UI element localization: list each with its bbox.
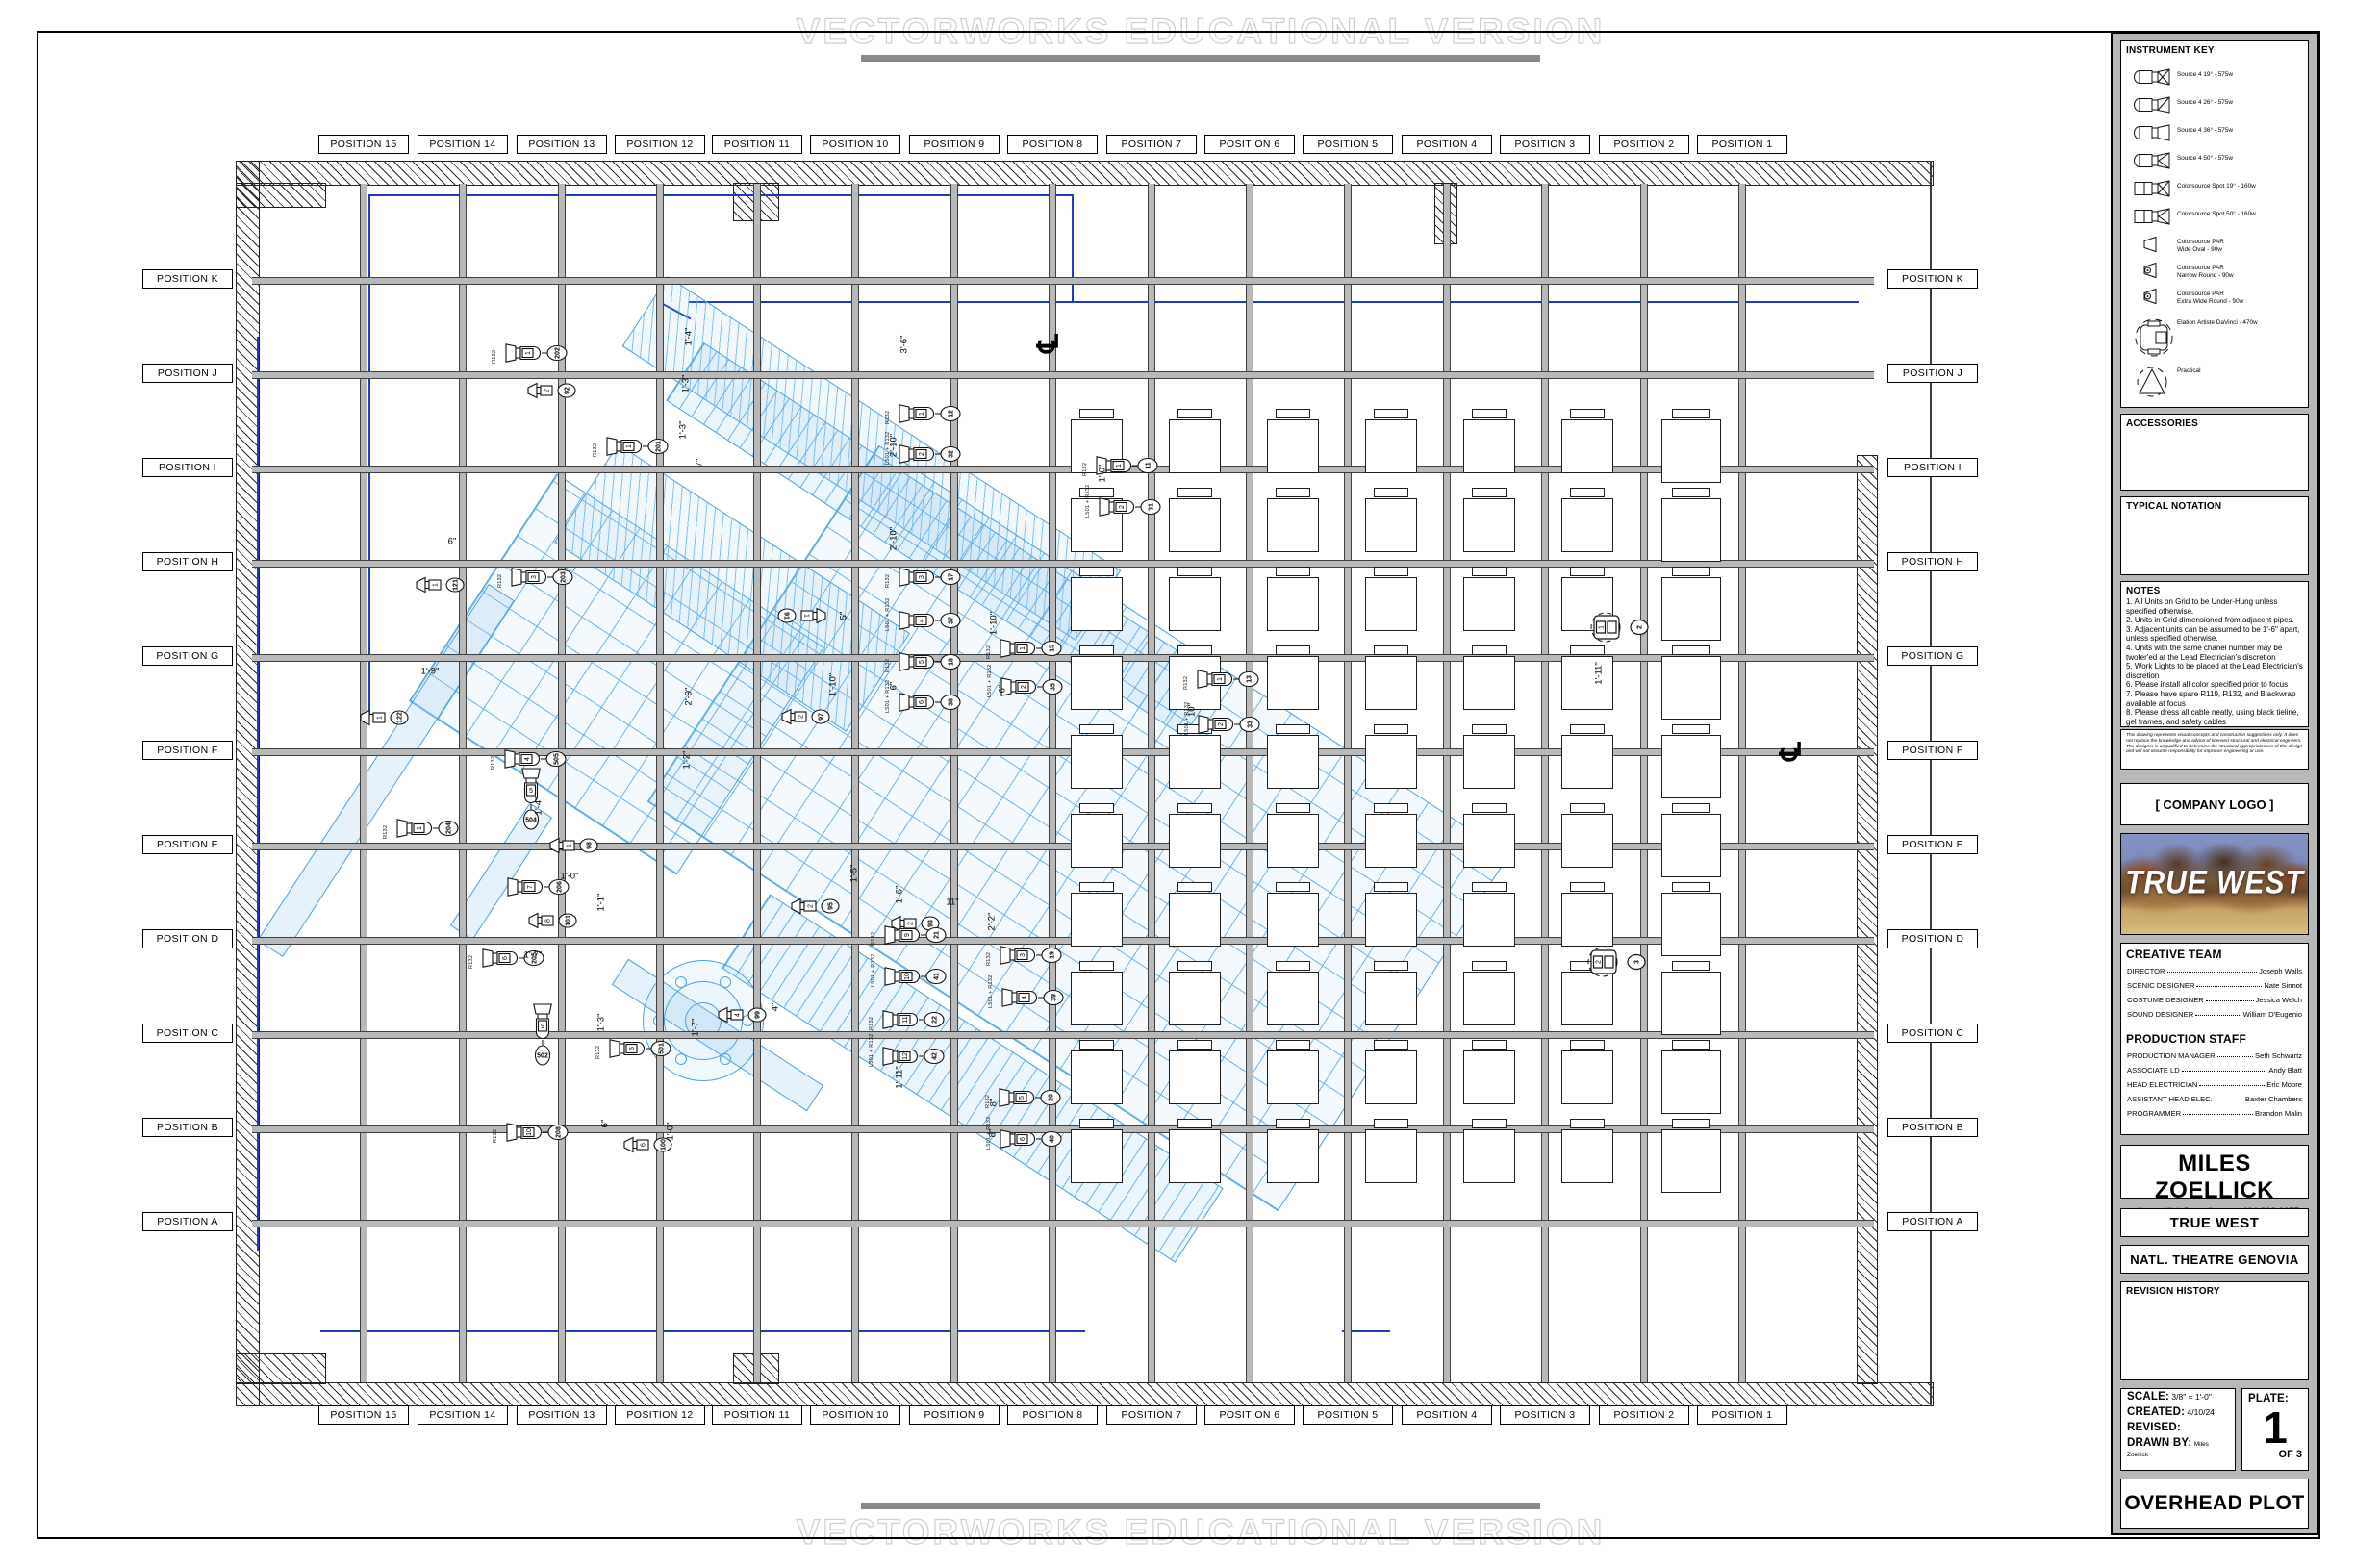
svg-text:4: 4: [734, 1013, 741, 1017]
colorsource-spot-50-icon: [2133, 208, 2173, 230]
credit-role: DIRECTOR: [2127, 967, 2165, 975]
grid-pipe-horizontal: [252, 937, 1874, 945]
production-staff-rows: PRODUCTION MANAGER Seth SchwartzASSOCIAT…: [2121, 1046, 2308, 1118]
scenic-outline-line: [689, 301, 1859, 303]
scenic-turntable-bolt: [720, 1053, 731, 1065]
seat-module-box: [1071, 1129, 1123, 1183]
seat-module-box: [1561, 814, 1613, 868]
grid-pipe-vertical: [753, 184, 761, 1382]
credit-name: Brandon Malin: [2255, 1109, 2302, 1118]
seat-module-box: [1071, 814, 1123, 868]
position-label-right: POSITION D: [1887, 929, 1978, 948]
instrument-key-item-label: Colorsource PAR Extra Wide Round - 90w: [2177, 291, 2243, 305]
seat-module-box: [1071, 893, 1123, 947]
seat-module-box: [1267, 498, 1319, 552]
position-label-top: POSITION 1: [1697, 135, 1787, 154]
grid-pipe-horizontal: [252, 560, 1874, 568]
position-label-right: POSITION A: [1887, 1212, 1978, 1231]
riser-module-clamp: [1672, 882, 1710, 892]
seat-module-clamp: [1276, 803, 1310, 813]
fixture-accessory-label: R132: [383, 818, 389, 839]
svg-text:202: 202: [554, 347, 561, 359]
grid-pipe-vertical: [1640, 184, 1648, 1382]
position-label-left: POSITION C: [142, 1024, 233, 1043]
grid-pipe-horizontal: [252, 466, 1874, 473]
svg-text:11: 11: [902, 1016, 909, 1023]
fixture-accessory-label: R132: [986, 638, 992, 659]
seat-module-clamp: [1472, 488, 1507, 497]
position-label-bottom: POSITION 11: [712, 1405, 802, 1425]
credit-role: PROGRAMMER: [2127, 1109, 2181, 1118]
seat-module-box: [1365, 972, 1417, 1025]
colorsource-par-narrow-round-icon: [2133, 262, 2173, 284]
position-label-bottom: POSITION 9: [909, 1405, 1000, 1425]
seat-module-box: [1365, 814, 1417, 868]
designer-name: MILES ZOELLICK: [2121, 1151, 2308, 1204]
source4-26-icon: [2133, 96, 2173, 118]
svg-text:31: 31: [1148, 503, 1154, 511]
typical-notation-panel: TYPICAL NOTATION: [2120, 496, 2309, 575]
svg-text:18: 18: [948, 658, 954, 666]
seat-module-box: [1169, 577, 1221, 631]
svg-text:12: 12: [948, 410, 954, 417]
note-line: 5. Work Lights to be placed at the Lead …: [2121, 662, 2308, 680]
fixture-accessory-label: R132: [869, 1009, 874, 1030]
seat-module-clamp: [1472, 724, 1507, 734]
seat-module-clamp: [1276, 409, 1310, 418]
seat-module-clamp: [1177, 409, 1212, 418]
credit-name: Eric Moore: [2266, 1080, 2302, 1089]
wall-bottom: [236, 1382, 1934, 1406]
seat-module-clamp: [1374, 803, 1408, 813]
credit-name: Jessica Welch: [2256, 996, 2302, 1004]
fixture-accessory-label: R132: [871, 924, 876, 946]
position-label-bottom: POSITION 8: [1007, 1405, 1098, 1425]
dimension-label: 1'-4": [684, 328, 695, 346]
svg-text:17: 17: [948, 573, 954, 581]
fixture-s4-channel-33: 2 33: [1196, 715, 1265, 734]
fixture-s4-channel-202: 1 202: [503, 343, 572, 363]
svg-text:32: 32: [948, 450, 954, 458]
svg-text:504: 504: [525, 817, 537, 823]
svg-text:97: 97: [818, 713, 824, 721]
credit-row: SCENIC DESIGNER Nate Sinnot: [2121, 975, 2308, 990]
seat-module-clamp: [1079, 1119, 1114, 1128]
position-label-top: POSITION 7: [1106, 135, 1197, 154]
position-label-bottom: POSITION 1: [1697, 1405, 1787, 1425]
dimension-label: 6": [600, 1120, 611, 1128]
fixture-accessory-label: L501 + R132: [885, 610, 891, 631]
dimension-label: 3'-6": [899, 336, 910, 354]
company-logo-panel: [ COMPANY LOGO ]: [2120, 783, 2309, 825]
plot-area: POSITION 15POSITION 15POSITION 14POSITIO…: [0, 0, 2020, 1568]
scenic-outline-line: [1072, 194, 1074, 303]
dimension-label: 4": [771, 1003, 781, 1012]
seat-module-box: [1561, 498, 1613, 552]
instrument-key-item-label: Colorsource PAR Narrow Round - 90w: [2177, 265, 2234, 279]
svg-text:100: 100: [660, 1139, 667, 1151]
seat-module-clamp: [1374, 1119, 1408, 1128]
seat-module-box: [1267, 577, 1319, 631]
seat-module-box: [1169, 1050, 1221, 1104]
position-label-left: POSITION J: [142, 364, 233, 383]
instrument-key-item-label: Practical: [2177, 367, 2201, 375]
grid-pipe-horizontal: [252, 1220, 1874, 1227]
source4-19-icon: [2133, 68, 2173, 90]
svg-text:92: 92: [564, 387, 570, 394]
seat-module-clamp: [1177, 488, 1212, 497]
riser-module-box: [1661, 735, 1721, 798]
seat-module-clamp: [1374, 567, 1408, 576]
seat-module-clamp: [1472, 803, 1507, 813]
seat-module-clamp: [1276, 724, 1310, 734]
seat-module-clamp: [1374, 409, 1408, 418]
svg-text:204: 204: [445, 822, 452, 834]
seat-module-clamp: [1079, 645, 1114, 655]
fixture-s4-channel-42: 12 42: [880, 1047, 950, 1066]
position-label-bottom: POSITION 7: [1106, 1405, 1197, 1425]
seat-module-box: [1365, 893, 1417, 947]
svg-text:3: 3: [1020, 953, 1026, 957]
instrument-key-item-label: Source 4 26° - 575w: [2177, 99, 2233, 107]
dimension-label: 1'-10": [989, 612, 1000, 635]
grid-pipe-vertical: [1738, 184, 1746, 1382]
grid-pipe-vertical: [1246, 184, 1253, 1382]
position-label-top: POSITION 9: [909, 135, 1000, 154]
fixture-s4-channel-31: 2 31: [1097, 497, 1166, 517]
svg-text:2: 2: [798, 715, 804, 719]
svg-text:3: 3: [531, 575, 538, 579]
fixture-s4-channel-17: 3 17: [897, 568, 966, 587]
seat-module-clamp: [1472, 409, 1507, 418]
dimension-label: 8": [989, 1099, 1000, 1107]
svg-text:6: 6: [1020, 1137, 1026, 1141]
svg-text:35: 35: [1050, 683, 1056, 691]
fixture-par-channel-122: 1 122: [358, 708, 412, 727]
grid-pipe-vertical: [656, 184, 664, 1382]
svg-text:121: 121: [452, 579, 459, 591]
seat-module-clamp: [1374, 645, 1408, 655]
seat-module-box: [1365, 498, 1417, 552]
svg-text:2: 2: [1021, 685, 1027, 689]
dimension-label: 1'-0": [1098, 465, 1108, 483]
credit-leader-dots: [2182, 1071, 2267, 1072]
fixture-accessory-label: L501 + R132: [1085, 496, 1091, 518]
dimension-label: 1'-4": [534, 797, 544, 816]
fixture-par-channel-97: 2 97: [779, 707, 833, 726]
position-label-top: POSITION 3: [1500, 135, 1590, 154]
centerline-mark: ℄: [1032, 334, 1066, 352]
svg-text:39: 39: [1051, 994, 1057, 1001]
disclaimer-text: This drawing represents visual concepts …: [2121, 730, 2308, 758]
instrument-key-item-label: Source 4 50° - 575w: [2177, 155, 2233, 163]
note-line: 2. Units in Grid dimensioned from adjace…: [2121, 616, 2308, 625]
svg-text:122: 122: [396, 712, 403, 723]
fixture-accessory-label: L501 + R132: [988, 987, 994, 1008]
seat-module-box: [1071, 577, 1123, 631]
credit-row: PRODUCTION MANAGER Seth Schwartz: [2121, 1046, 2308, 1060]
svg-text:5: 5: [919, 660, 925, 664]
svg-text:2: 2: [1218, 722, 1225, 726]
svg-text:6: 6: [919, 700, 925, 704]
position-label-bottom: POSITION 2: [1599, 1405, 1689, 1425]
fixture-s4-channel-201: 1 201: [604, 437, 673, 456]
seat-module-clamp: [1570, 645, 1605, 655]
fixture-s4-channel-37: 4 37: [897, 611, 966, 630]
fixture-accessory-label: L501 + R132: [885, 692, 891, 713]
seat-module-box: [1267, 419, 1319, 473]
fixture-accessory-label: L501 + R132: [869, 1046, 874, 1067]
credit-row: SOUND DESIGNER William D'Eugenio: [2121, 1004, 2308, 1019]
seat-module-box: [1169, 419, 1221, 473]
fixture-par-channel-92: 2 92: [525, 381, 579, 400]
position-label-bottom: POSITION 4: [1402, 1405, 1492, 1425]
position-label-left: POSITION I: [142, 458, 233, 477]
seat-module-clamp: [1177, 645, 1212, 655]
fixture-s4-channel-21: 9 21: [882, 925, 951, 945]
credit-row: PROGRAMMER Brandon Malin: [2121, 1103, 2308, 1118]
designer-panel: MILES ZOELLICK mileszoellick@gmail.com –…: [2120, 1145, 2309, 1199]
instrument-key-panel: INSTRUMENT KEY Source 4 19° - 575w Sourc…: [2120, 40, 2309, 408]
position-label-top: POSITION 10: [810, 135, 900, 154]
scenic-outline-line: [368, 194, 370, 717]
position-label-right: POSITION C: [1887, 1024, 1978, 1043]
fixture-s4-channel-20: 5 20: [997, 1088, 1066, 1107]
svg-text:9: 9: [904, 933, 911, 937]
seat-module-clamp: [1276, 1119, 1310, 1128]
seat-module-box: [1561, 656, 1613, 710]
dimension-label: 1'-3": [678, 421, 689, 440]
dimension-label: 1'-2": [682, 751, 693, 770]
credit-role: PRODUCTION MANAGER: [2127, 1051, 2216, 1060]
company-logo-placeholder: [ COMPANY LOGO ]: [2155, 797, 2273, 812]
seat-module-clamp: [1079, 882, 1114, 892]
seat-module-clamp: [1570, 409, 1605, 418]
seat-module-clamp: [1079, 724, 1114, 734]
seat-module-clamp: [1079, 803, 1114, 813]
position-label-top: POSITION 8: [1007, 135, 1098, 154]
grid-pipe-vertical: [1541, 184, 1549, 1382]
dimension-label: 1'-5": [849, 865, 860, 883]
seat-module-box: [1463, 735, 1515, 789]
drafting-sheet: VECTORWORKS EDUCATIONAL VERSION VECTORWO…: [0, 0, 2355, 1568]
credit-name: Nate Sinnot: [2264, 981, 2302, 990]
title-block: INSTRUMENT KEY Source 4 19° - 575w Sourc…: [2111, 32, 2318, 1535]
riser-module-clamp: [1672, 1040, 1710, 1050]
position-label-right: POSITION F: [1887, 741, 1978, 760]
fixture-accessory-label: R132: [491, 748, 496, 770]
seat-module-clamp: [1079, 567, 1114, 576]
credit-leader-dots: [2206, 1000, 2254, 1001]
seat-module-box: [1463, 1129, 1515, 1183]
seat-module-clamp: [1374, 1040, 1408, 1050]
riser-module-box: [1661, 893, 1721, 956]
instrument-key-item-label: Colorsource Spot 50° - 160w: [2177, 211, 2256, 218]
credit-leader-dots: [2167, 972, 2258, 973]
svg-text:1: 1: [566, 844, 572, 847]
fixture-accessory-label: R132: [492, 342, 497, 364]
note-line: 3. Adjacent units can be assumed to be 1…: [2121, 625, 2308, 644]
grid-pipe-vertical: [360, 184, 367, 1382]
dimension-label: 1'-0": [666, 1123, 676, 1141]
notes-panel: NOTES 1. All Units on Grid to be Under-H…: [2120, 581, 2309, 727]
position-label-bottom: POSITION 12: [615, 1405, 705, 1425]
position-label-top: POSITION 4: [1402, 135, 1492, 154]
seat-module-box: [1463, 972, 1515, 1025]
seat-module-box: [1463, 498, 1515, 552]
seat-module-box: [1267, 1050, 1319, 1104]
svg-text:98: 98: [586, 842, 593, 849]
svg-text:1: 1: [919, 412, 925, 416]
riser-module-clamp: [1672, 1119, 1710, 1128]
seat-module-box: [1267, 814, 1319, 868]
grid-pipe-vertical: [1049, 184, 1056, 1382]
seat-module-box: [1463, 656, 1515, 710]
svg-text:9: 9: [541, 1024, 544, 1030]
fixture-accessory-label: R132: [1082, 455, 1088, 476]
seat-module-box: [1169, 1129, 1221, 1183]
svg-text:1: 1: [1116, 464, 1123, 468]
grid-pipe-horizontal: [252, 371, 1874, 379]
svg-text:4: 4: [524, 757, 531, 761]
position-label-left: POSITION G: [142, 646, 233, 666]
dimension-label: 2'-10": [889, 527, 899, 550]
svg-text:2: 2: [1637, 625, 1644, 629]
centerline-mark: ℄: [1775, 742, 1809, 760]
seat-module-box: [1561, 735, 1613, 789]
seat-module-box: [1267, 893, 1319, 947]
fixture-s4-channel-38: 6 38: [897, 693, 966, 712]
seat-module-clamp: [1472, 645, 1507, 655]
created-label: CREATED:: [2127, 1406, 2185, 1418]
dimension-label: 2'-2": [987, 913, 998, 931]
seat-module-box: [1267, 972, 1319, 1025]
team-panel: CREATIVE TEAM DIRECTOR Joseph WallsSCENI…: [2120, 943, 2309, 1135]
seat-module-clamp: [1374, 724, 1408, 734]
seat-module-box: [1169, 498, 1221, 552]
riser-module-clamp: [1672, 961, 1710, 971]
svg-text:1: 1: [1599, 625, 1606, 629]
seat-module-clamp: [1570, 1119, 1605, 1128]
position-label-left: POSITION K: [142, 269, 233, 289]
svg-text:206: 206: [556, 881, 563, 893]
production-staff-title: PRODUCTION STAFF: [2121, 1028, 2308, 1046]
fixture-s4-channel-12: 1 12: [897, 404, 966, 423]
venue-name: NATL. THEATRE GENOVIA: [2130, 1252, 2298, 1267]
plate-panel: PLATE: 1 OF 3: [2241, 1388, 2309, 1471]
fixture-s4-channel-35: 2 35: [999, 677, 1068, 696]
instrument-key-item-label: Colorsource Spot 19° - 160w: [2177, 183, 2256, 190]
seat-module-clamp: [1570, 803, 1605, 813]
fixture-s4-channel-18: 5 18: [897, 652, 966, 671]
credit-row: ASSOCIATE LD Andy Blatt: [2121, 1060, 2308, 1075]
svg-text:12: 12: [902, 1052, 909, 1060]
seat-module-clamp: [1374, 961, 1408, 971]
credit-row: ASSISTANT HEAD ELEC. Baxter Chambers: [2121, 1089, 2308, 1103]
dimension-label: 1'-10": [828, 673, 839, 696]
seat-module-clamp: [1079, 1040, 1114, 1050]
grid-pipe-vertical: [950, 184, 958, 1382]
seat-module-clamp: [1276, 1040, 1310, 1050]
svg-text:15: 15: [1049, 645, 1055, 652]
fixture-s4-channel-203: 3 203: [509, 568, 578, 587]
disclaimer-panel: This drawing represents visual concepts …: [2120, 729, 2309, 770]
svg-text:6: 6: [502, 956, 509, 960]
scale-value: 3/8" = 1'-0": [2171, 1392, 2211, 1402]
dimension-label: 11": [946, 898, 958, 908]
credit-leader-dots: [2215, 1100, 2243, 1100]
seat-module-box: [1463, 814, 1515, 868]
fixture-accessory-label: R132: [885, 403, 891, 424]
seat-module-clamp: [1079, 409, 1114, 418]
fixture-par-channel-95: 2 95: [789, 897, 843, 916]
seat-module-clamp: [1472, 961, 1507, 971]
riser-module-clamp: [1672, 645, 1710, 655]
grid-pipe-vertical: [1148, 184, 1155, 1382]
seat-module-box: [1561, 1129, 1613, 1183]
svg-text:3: 3: [1634, 960, 1641, 964]
credit-role: COSTUME DESIGNER: [2127, 996, 2204, 1004]
svg-text:4: 4: [919, 619, 925, 622]
position-label-left: POSITION A: [142, 1212, 233, 1231]
elation-artiste-davinci-icon: [2133, 316, 2175, 364]
seat-module-clamp: [1472, 567, 1507, 576]
venue-panel: NATL. THEATRE GENOVIA: [2120, 1245, 2309, 1274]
svg-text:8: 8: [544, 919, 551, 923]
seat-module-box: [1365, 419, 1417, 473]
svg-text:2: 2: [544, 389, 550, 392]
svg-text:101: 101: [565, 915, 571, 926]
svg-text:13: 13: [1246, 675, 1253, 683]
fixture-par-channel-121: 1 121: [414, 575, 468, 594]
grid-pipe-horizontal: [252, 277, 1874, 285]
instrument-key-item-label: Source 4 36° - 575w: [2177, 127, 2233, 135]
fixture-s4-channel-501: 5 501: [607, 1039, 676, 1058]
svg-text:33: 33: [1247, 721, 1253, 728]
position-label-right: POSITION B: [1887, 1118, 1978, 1137]
note-line: 8. Please dress all cable neatly, using …: [2121, 708, 2308, 726]
dimension-label: 1'-3": [681, 375, 692, 393]
position-label-bottom: POSITION 13: [517, 1405, 607, 1425]
seat-module-clamp: [1079, 961, 1114, 971]
dimension-label: 6": [889, 682, 899, 691]
position-label-bottom: POSITION 3: [1500, 1405, 1590, 1425]
credit-role: SOUND DESIGNER: [2127, 1010, 2193, 1019]
dimension-label: 1'-9": [421, 667, 440, 677]
position-label-right: POSITION I: [1887, 458, 1978, 477]
fixture-s4-channel-41: 10 41: [882, 967, 951, 986]
seat-module-box: [1169, 814, 1221, 868]
riser-module-clamp: [1672, 724, 1710, 734]
show-title: TRUE WEST: [2170, 1215, 2260, 1231]
svg-text:10: 10: [526, 1128, 533, 1136]
credit-name: Andy Blatt: [2268, 1066, 2302, 1075]
seat-module-box: [1463, 577, 1515, 631]
svg-text:1: 1: [1217, 677, 1224, 681]
seat-module-clamp: [1276, 488, 1310, 497]
show-art-image: TRUE WEST: [2120, 833, 2309, 935]
fixture-s4-channel-502: 9 502: [533, 1001, 552, 1071]
instrument-key-title: INSTRUMENT KEY: [2121, 41, 2308, 56]
svg-text:91: 91: [783, 612, 790, 620]
seat-module-box: [1463, 419, 1515, 473]
seat-module-box: [1071, 735, 1123, 789]
dimension-label: 6": [998, 685, 1008, 694]
seat-module-clamp: [1177, 882, 1212, 892]
seat-module-box: [1365, 656, 1417, 710]
seat-module-clamp: [1276, 645, 1310, 655]
seat-module-box: [1071, 1050, 1123, 1104]
